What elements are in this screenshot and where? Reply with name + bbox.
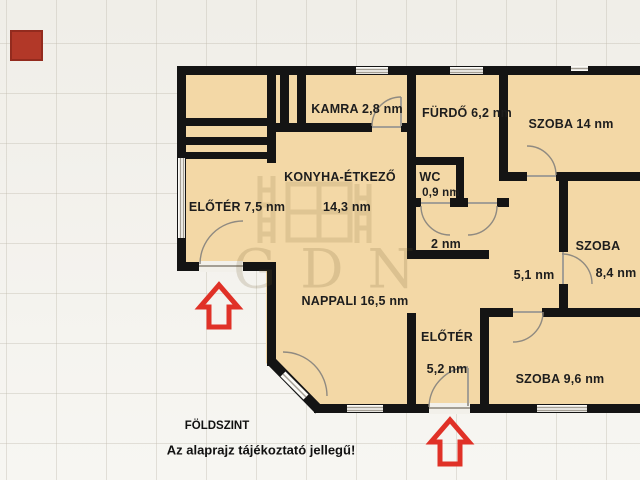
room-area-hall51: 5,1 nm <box>514 268 555 282</box>
entrance-arrow-icon <box>431 420 469 464</box>
room-area-konyha: 14,3 nm <box>323 200 371 214</box>
room-label-kamra: KAMRA 2,8 nm <box>311 102 403 116</box>
room-label-eloter75: ELŐTÉR 7,5 nm <box>189 200 285 214</box>
room-label-wc: WC <box>419 170 440 184</box>
floor-level-title: FÖLDSZINT <box>185 420 250 432</box>
room-label-eloter52: ELŐTÉR <box>421 330 473 344</box>
room-label-furdo: FÜRDŐ 6,2 nm <box>422 106 512 120</box>
room-area-wc: 0,9 nm <box>422 187 460 199</box>
room-label-szoba14: SZOBA 14 nm <box>528 117 613 131</box>
stairs <box>186 118 267 159</box>
room-area-eloter52: 5,2 nm <box>427 362 468 376</box>
floorplan-canvas: GDN KAMRA 2,8 nm FÜRDŐ 6,2 nm SZOBA 14 n… <box>0 0 640 480</box>
room-area-hall2: 2 nm <box>431 237 461 251</box>
disclaimer-text: Az alaprajz tájékoztató jellegű! <box>167 443 356 458</box>
room-label-szoba96: SZOBA 9,6 nm <box>516 372 605 386</box>
room-label-nappali: NAPPALI 16,5 nm <box>302 294 409 308</box>
room-area-szoba84: 8,4 nm <box>596 266 637 280</box>
room-label-konyha: KONYHA-ÉTKEZŐ <box>284 170 396 184</box>
watermark-text: GDN <box>233 238 439 301</box>
room-label-szoba84: SZOBA <box>576 239 621 253</box>
